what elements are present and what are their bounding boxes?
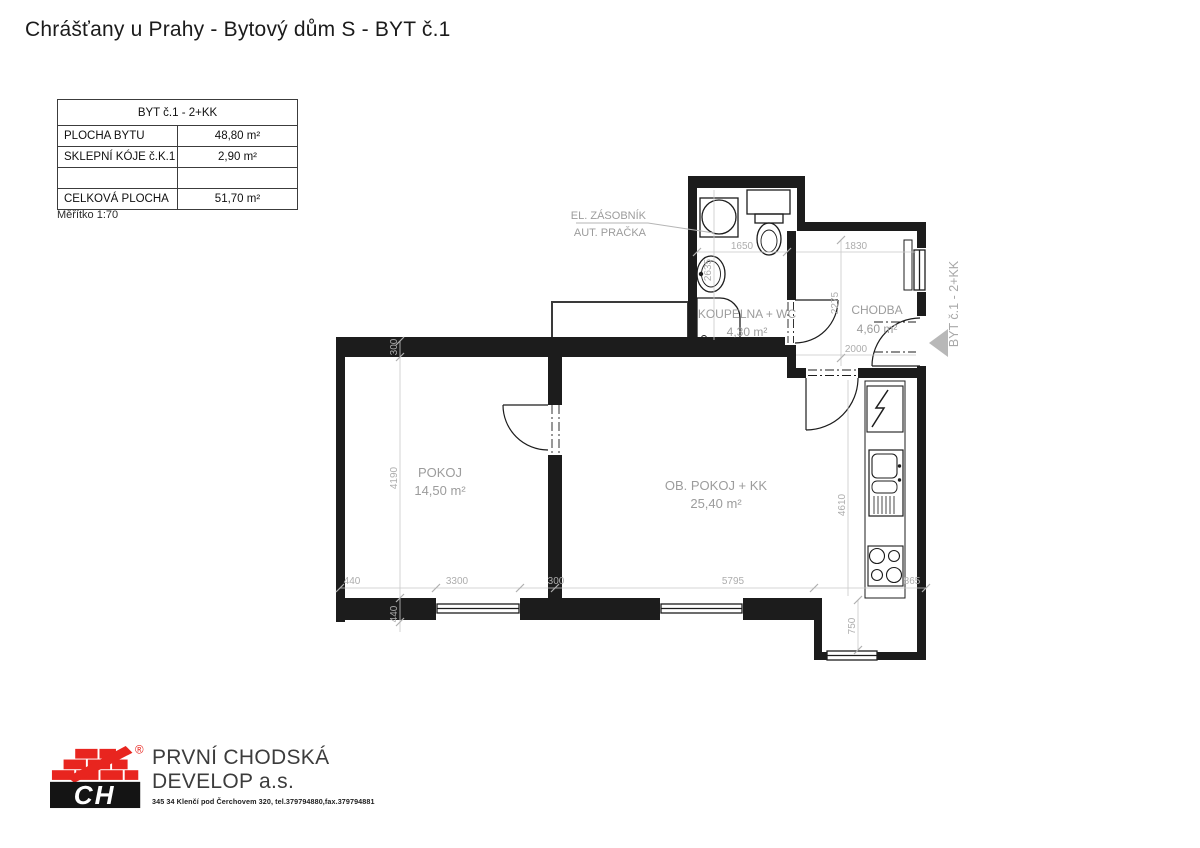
kitchen-counter — [865, 381, 905, 598]
room-koupelna-area: 4,30 m² — [727, 325, 768, 339]
dim-chodba-bottom: 2000 — [845, 344, 868, 355]
window-pokoj — [437, 604, 519, 613]
row-label: CELKOVÁ PLOCHA — [58, 189, 178, 210]
entrance-arrow-icon — [929, 329, 948, 357]
dim-pokoj-width: 3300 — [446, 576, 469, 587]
company-name-line2: DEVELOP a.s. — [152, 770, 375, 794]
room-koupelna-name: KOUPELNA + WC — [698, 307, 797, 321]
kitchen-sink-icon — [869, 450, 903, 516]
building-annex-outline — [552, 302, 688, 341]
room-obpokoj-area: 25,40 m² — [690, 496, 742, 511]
info-table-header: BYT č.1 - 2+KK — [58, 100, 298, 126]
boiler-icon — [747, 190, 790, 214]
dimension-lines — [340, 190, 926, 650]
dim-obpokoj-width: 5795 — [722, 576, 745, 587]
entrance-unit-label: BYT č.1 - 2+KK — [947, 260, 961, 347]
dim-partition: 300 — [548, 576, 565, 587]
door-obpokoj — [806, 378, 858, 430]
kitchen-fixtures — [865, 381, 905, 598]
entrance-marker: BYT č.1 - 2+KK — [929, 260, 961, 357]
chodba-shaft — [904, 240, 912, 290]
row-label — [58, 168, 178, 189]
walls — [336, 176, 926, 660]
dim-pokoj-height: 4190 — [389, 466, 400, 489]
dim-chodba-height: 2275 — [830, 291, 841, 314]
table-row — [58, 168, 298, 189]
room-chodba-name: CHODBA — [851, 303, 902, 317]
company-info: PRVNÍ CHODSKÁ DEVELOP a.s. 345 34 Klenčí… — [152, 746, 375, 806]
table-row: CELKOVÁ PLOCHA 51,70 m² — [58, 189, 298, 210]
dimension-labels: 300 4190 440 440 3300 300 5795 865 1650 … — [344, 241, 921, 634]
dim-left-offset: 440 — [344, 576, 361, 587]
dim-koupelna-height: 2635 — [703, 258, 714, 281]
page-title: Chrášťany u Prahy - Bytový dům S - BYT č… — [25, 18, 451, 42]
dim-niche-height: 750 — [847, 617, 858, 634]
floorplan-page: Chrášťany u Prahy - Bytový dům S - BYT č… — [0, 0, 1200, 848]
door-pokoj — [503, 405, 548, 450]
floorplan-drawing: 300 4190 440 440 3300 300 5795 865 1650 … — [330, 160, 980, 685]
company-address: 345 34 Klenčí pod Čerchovem 320, tel.379… — [152, 797, 375, 806]
row-value: 51,70 m² — [178, 189, 298, 210]
room-chodba-area: 4,60 m² — [857, 322, 898, 336]
row-value: 48,80 m² — [178, 126, 298, 147]
window-niche — [827, 651, 877, 660]
washing-machine-icon — [700, 198, 738, 237]
label-aut-pracka: AUT. PRAČKA — [574, 226, 647, 239]
scale-note: Měřítko 1:70 — [57, 209, 118, 221]
row-label: PLOCHA BYTU — [58, 126, 178, 147]
brick-house-icon: ® CH — [50, 744, 144, 810]
registered-mark: ® — [135, 744, 144, 757]
dim-top-wall: 300 — [389, 338, 400, 355]
dim-pokoj-sill: 440 — [389, 605, 400, 622]
window-chodba — [914, 250, 925, 290]
fridge-icon — [867, 386, 903, 432]
room-pokoj-name: POKOJ — [418, 465, 462, 480]
toilet-icon — [755, 214, 783, 255]
row-value: 2,90 m² — [178, 147, 298, 168]
dim-koupelna-width: 1650 — [731, 241, 754, 252]
room-pokoj-area: 14,50 m² — [414, 483, 466, 498]
label-el-zasobnik: EL. ZÁSOBNÍK — [571, 209, 647, 222]
company-name-line1: PRVNÍ CHODSKÁ — [152, 746, 375, 770]
table-row: SKLEPNÍ KÓJE č.K.1 2,90 m² — [58, 147, 298, 168]
table-row: PLOCHA BYTU 48,80 m² — [58, 126, 298, 147]
dim-niche-width: 865 — [904, 576, 921, 587]
row-value — [178, 168, 298, 189]
dim-chodba-width: 1830 — [845, 241, 868, 252]
row-label: SKLEPNÍ KÓJE č.K.1 — [58, 147, 178, 168]
company-logo: ® CH — [50, 742, 147, 812]
dim-obpokoj-height: 4610 — [837, 493, 848, 516]
apartment-info-table: BYT č.1 - 2+KK PLOCHA BYTU 48,80 m² SKLE… — [57, 99, 298, 210]
logo-letters: CH — [74, 780, 116, 810]
stove-icon — [868, 546, 903, 586]
window-obpokoj — [661, 604, 742, 613]
room-obpokoj-name: OB. POKOJ + KK — [665, 478, 768, 493]
